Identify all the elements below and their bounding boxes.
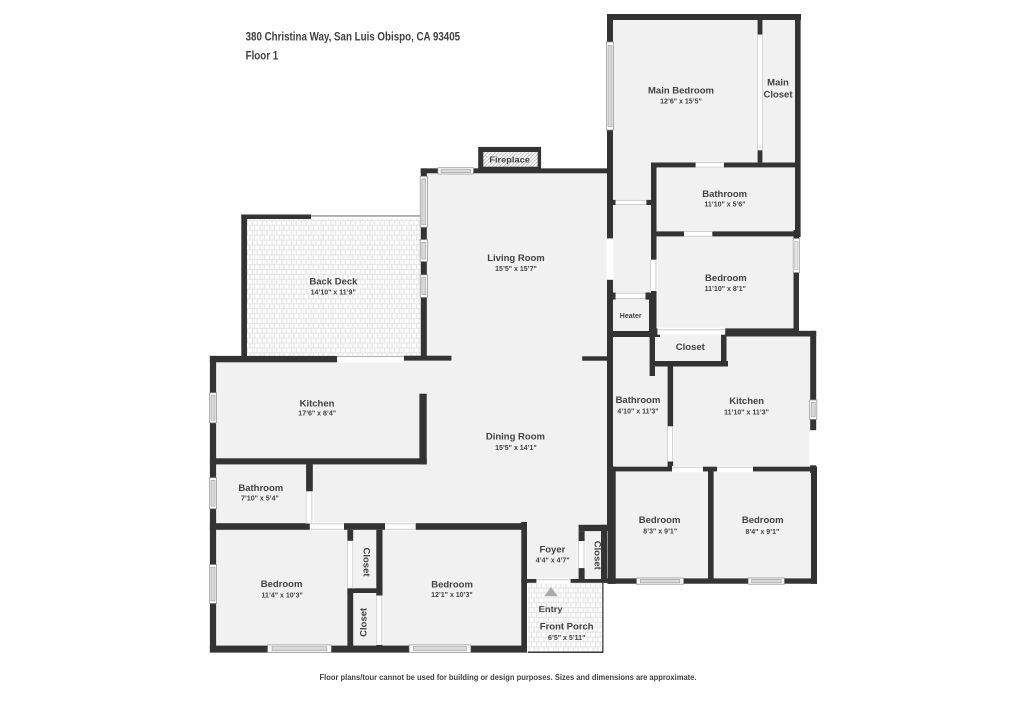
svg-text:Closet: Closet xyxy=(763,89,793,100)
svg-text:4’10" x 11’3": 4’10" x 11’3" xyxy=(617,408,658,415)
svg-text:8’3" x 9’1": 8’3" x 9’1" xyxy=(643,528,677,535)
svg-text:Floor plans/tour cannot be use: Floor plans/tour cannot be used for buil… xyxy=(320,673,697,682)
svg-text:11’4" x 10’3": 11’4" x 10’3" xyxy=(262,592,303,599)
svg-text:Bathroom: Bathroom xyxy=(616,395,661,406)
svg-text:7’10" x 5’4": 7’10" x 5’4" xyxy=(241,496,279,503)
svg-text:Closet: Closet xyxy=(359,607,370,637)
svg-text:Foyer: Foyer xyxy=(539,545,565,556)
svg-text:Front Porch: Front Porch xyxy=(540,622,594,633)
svg-text:Bedroom: Bedroom xyxy=(742,515,784,526)
svg-text:Bathroom: Bathroom xyxy=(702,189,747,200)
svg-text:6’5" x 5’11": 6’5" x 5’11" xyxy=(548,635,585,642)
svg-text:Entry: Entry xyxy=(539,604,563,614)
svg-text:Living Room: Living Room xyxy=(487,253,545,264)
svg-text:Closet: Closet xyxy=(676,342,706,353)
svg-text:11’10" x 5’6": 11’10" x 5’6" xyxy=(704,202,745,209)
svg-text:14’10" x 11’9": 14’10" x 11’9" xyxy=(311,290,356,297)
svg-text:Dining Room: Dining Room xyxy=(486,432,545,443)
svg-text:8’4" x 9’1": 8’4" x 9’1" xyxy=(745,529,779,536)
svg-text:Bedroom: Bedroom xyxy=(261,579,303,590)
svg-text:Bedroom: Bedroom xyxy=(431,579,473,590)
svg-text:Fireplace: Fireplace xyxy=(489,155,530,164)
svg-text:Heater: Heater xyxy=(620,313,642,320)
svg-text:4’4" x 4’7": 4’4" x 4’7" xyxy=(536,557,570,564)
svg-text:12’1" x 10’3": 12’1" x 10’3" xyxy=(431,592,473,599)
svg-text:12’6" x 15’5": 12’6" x 15’5" xyxy=(660,98,702,105)
svg-text:Kitchen: Kitchen xyxy=(729,396,764,407)
svg-text:Floor 1: Floor 1 xyxy=(246,51,279,63)
svg-text:Main Bedroom: Main Bedroom xyxy=(648,86,714,97)
svg-text:Kitchen: Kitchen xyxy=(300,398,335,409)
svg-text:15’5" x 15’7": 15’5" x 15’7" xyxy=(495,266,537,273)
svg-text:11’10" x 8’1": 11’10" x 8’1" xyxy=(705,286,746,293)
svg-text:Back Deck: Back Deck xyxy=(309,277,358,288)
svg-text:Bathroom: Bathroom xyxy=(238,483,283,494)
svg-text:15’5" x 14’1": 15’5" x 14’1" xyxy=(495,445,537,452)
svg-text:Bedroom: Bedroom xyxy=(705,273,747,284)
svg-text:Closet: Closet xyxy=(361,547,372,577)
svg-text:Main: Main xyxy=(767,77,789,88)
svg-text:17’6" x 8’4": 17’6" x 8’4" xyxy=(298,411,336,418)
svg-text:Bedroom: Bedroom xyxy=(639,515,681,526)
svg-text:380 Christina Way, San Luis Ob: 380 Christina Way, San Luis Obispo, CA 9… xyxy=(246,32,461,44)
svg-text:11’10" x 11’3": 11’10" x 11’3" xyxy=(724,409,769,416)
svg-text:Closet: Closet xyxy=(591,541,602,571)
